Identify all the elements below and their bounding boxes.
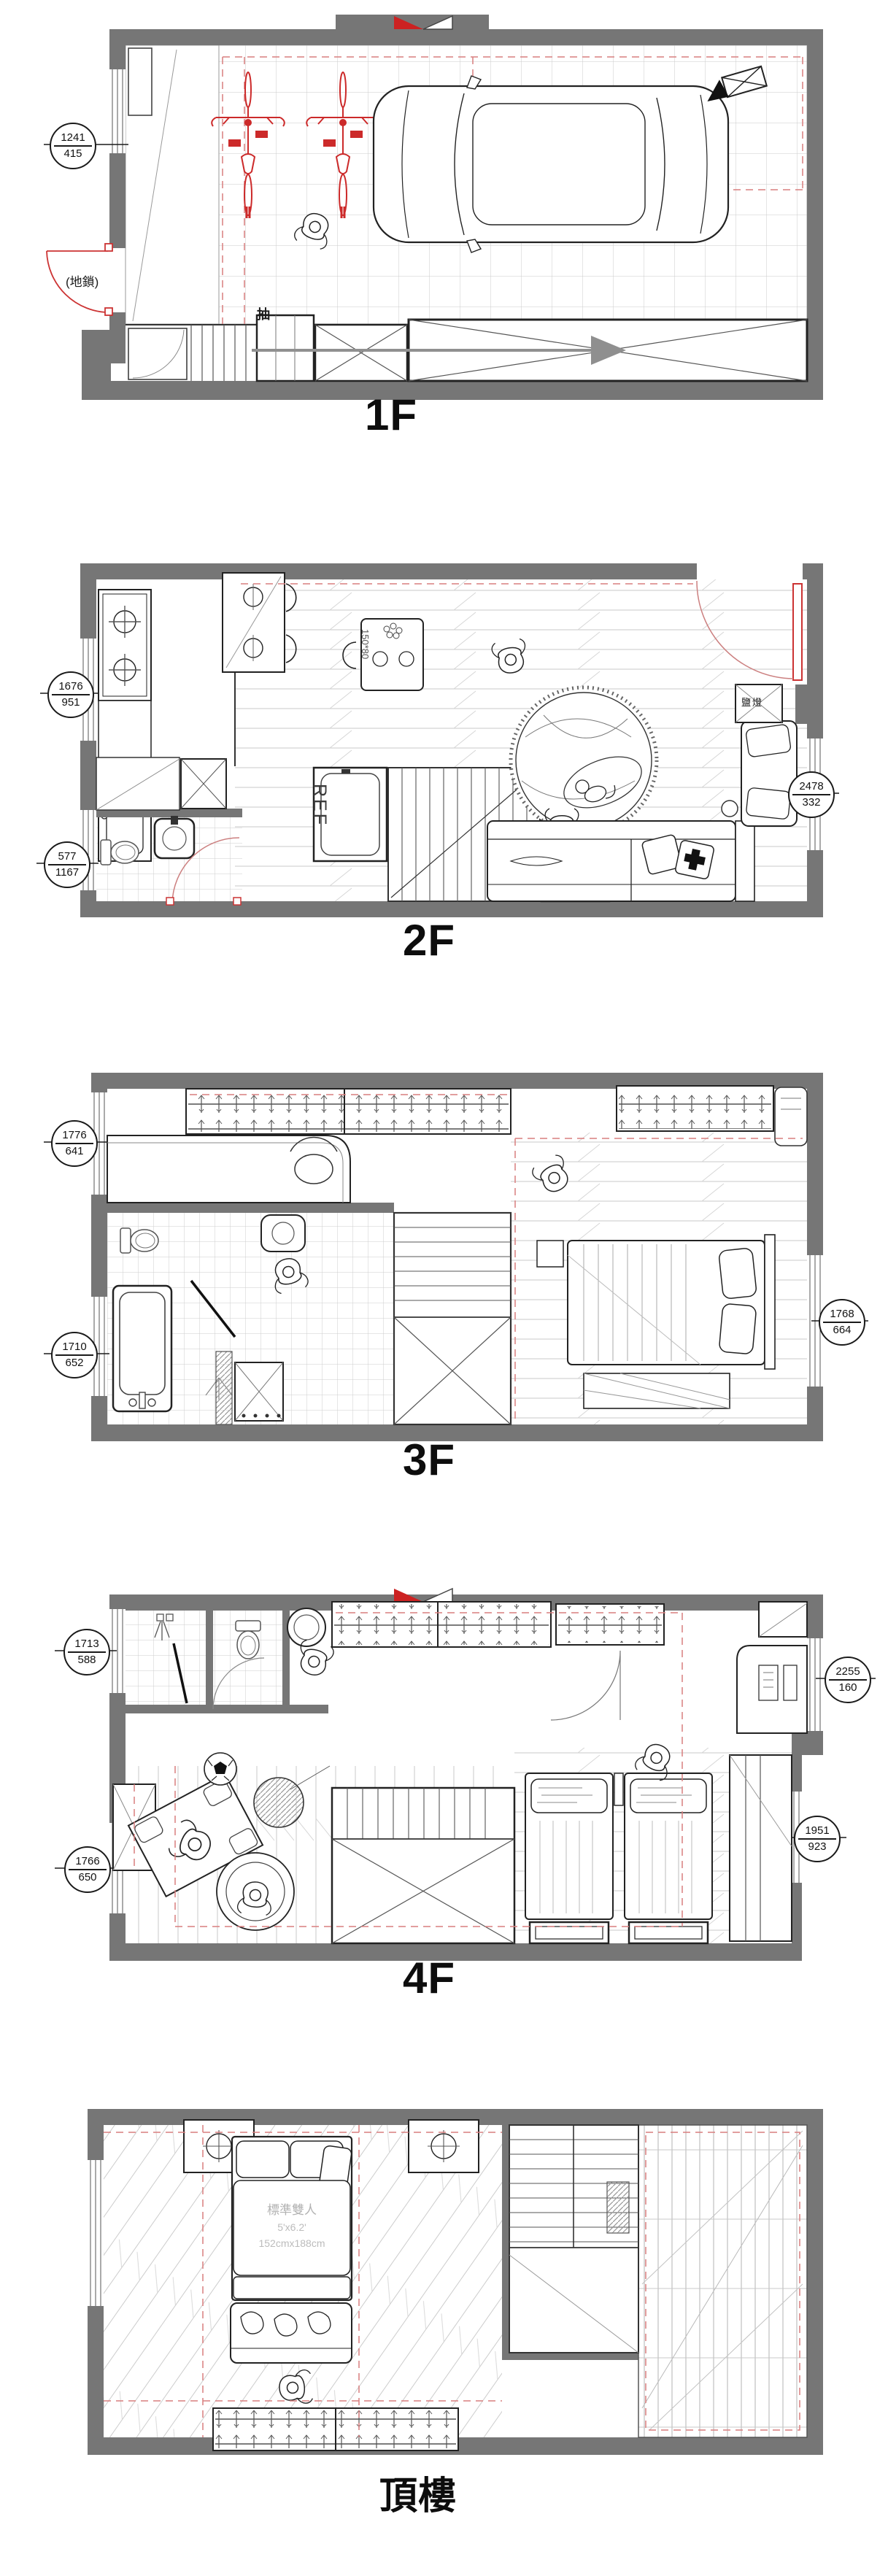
- closet-4f-right: [730, 1755, 792, 1941]
- dim-bubble: 5771167: [44, 841, 90, 888]
- stairs-roof: [509, 2125, 638, 2353]
- papasan-chair: [217, 1853, 294, 1930]
- dining-table: [223, 573, 296, 672]
- dim-bubble: 1766650: [64, 1846, 111, 1893]
- roof-sofa: [231, 2303, 352, 2363]
- drawer-box: [257, 315, 314, 381]
- closet-4f-top: [759, 1602, 807, 1637]
- salt-lamp-note: 鹽燈: [741, 695, 763, 709]
- toilet-icon: [101, 840, 139, 865]
- round-table-hatched: [254, 1778, 304, 1827]
- floor-label-roof: 頂樓: [379, 2465, 457, 2520]
- office-chair: [295, 1154, 333, 1184]
- stairs-3f: [394, 1213, 511, 1424]
- window-roof-left: [88, 2160, 104, 2306]
- wardrobe-4f: [332, 1602, 664, 1647]
- dim-bubble: 1241415: [50, 123, 96, 169]
- entry-cabinet: [128, 48, 152, 115]
- toilet-icon: [120, 1228, 158, 1253]
- wardrobe-roof: [213, 2408, 458, 2450]
- floor-lamp-icon: [722, 801, 738, 817]
- basin-icon: [155, 819, 194, 858]
- ac-unit: [775, 1087, 807, 1146]
- floorplan-drawing: [0, 0, 888, 2576]
- door-arc-4f: [551, 1651, 620, 1720]
- floor-plan-1f: [44, 15, 823, 400]
- skylight: [638, 2125, 807, 2437]
- floor-plan-2f: [36, 563, 839, 917]
- dim-bubble: 1713588: [63, 1629, 110, 1675]
- floor-plan-4f: [55, 1589, 876, 1961]
- desk-4f: [737, 1646, 807, 1733]
- wardrobe-3f-right: [617, 1086, 773, 1131]
- dim-bubble: 2255160: [825, 1657, 871, 1703]
- sofa-2f: [487, 821, 754, 901]
- floor-label-3f: 3F: [403, 1435, 455, 1485]
- hatched-column: [607, 2182, 629, 2233]
- nightstand: [614, 1773, 623, 1805]
- wardrobe-3f-left: [186, 1089, 511, 1134]
- nightstand: [537, 1241, 563, 1267]
- bed-type-label: 標準雙人: [235, 2201, 349, 2220]
- window-1f-left: [109, 69, 126, 153]
- bathtub-icon: [113, 1286, 171, 1411]
- basin-icon: [261, 1215, 305, 1252]
- floor-plan-roof: [88, 2109, 823, 2455]
- keyboard: [759, 1665, 778, 1700]
- dim-bubble: 2478332: [788, 771, 835, 818]
- laptop: [784, 1665, 797, 1700]
- dim-bubble: 1768664: [819, 1299, 865, 1346]
- round-rug: [511, 687, 657, 833]
- fridge-note: REF: [309, 784, 330, 827]
- chaise-lounge: [741, 721, 797, 826]
- dim-bubble: 1951923: [794, 1816, 841, 1862]
- floor-label-2f: 2F: [403, 915, 455, 965]
- drawer-note: 抽: [257, 304, 270, 323]
- bed-size-ft-label: 5'x6.2': [235, 2220, 349, 2236]
- stairs-4f: [332, 1788, 514, 1943]
- soccer-ball-icon: [204, 1753, 236, 1785]
- floor-plan-3f: [44, 1073, 868, 1441]
- dim-bubble: 1676951: [47, 671, 94, 718]
- stairs-1f: [126, 315, 807, 381]
- desk-3f: [107, 1135, 350, 1203]
- car: [374, 76, 728, 252]
- floor-label-4f: 4F: [403, 1953, 455, 2003]
- window-4f-right-upper: [807, 1638, 823, 1731]
- dim-bubble: 1710652: [51, 1332, 98, 1378]
- table-size-note: 150*80: [360, 629, 371, 659]
- bed-size-cm-label: 152cmx188cm: [235, 2236, 349, 2252]
- dresser: [235, 1362, 283, 1421]
- ground-lock-note: (地鎖): [66, 271, 99, 290]
- floor-label-1f: 1F: [365, 390, 417, 440]
- toilet-icon: [236, 1621, 260, 1659]
- floorplan-sheet: 1F 2F 3F 4F 頂樓 (地鎖) 抽 鹽燈 REF 150*80 標準雙人…: [0, 0, 888, 2576]
- dim-bubble: 1776641: [51, 1120, 98, 1167]
- bed-size-note: 標準雙人 5'x6.2' 152cmx188cm: [235, 2201, 349, 2252]
